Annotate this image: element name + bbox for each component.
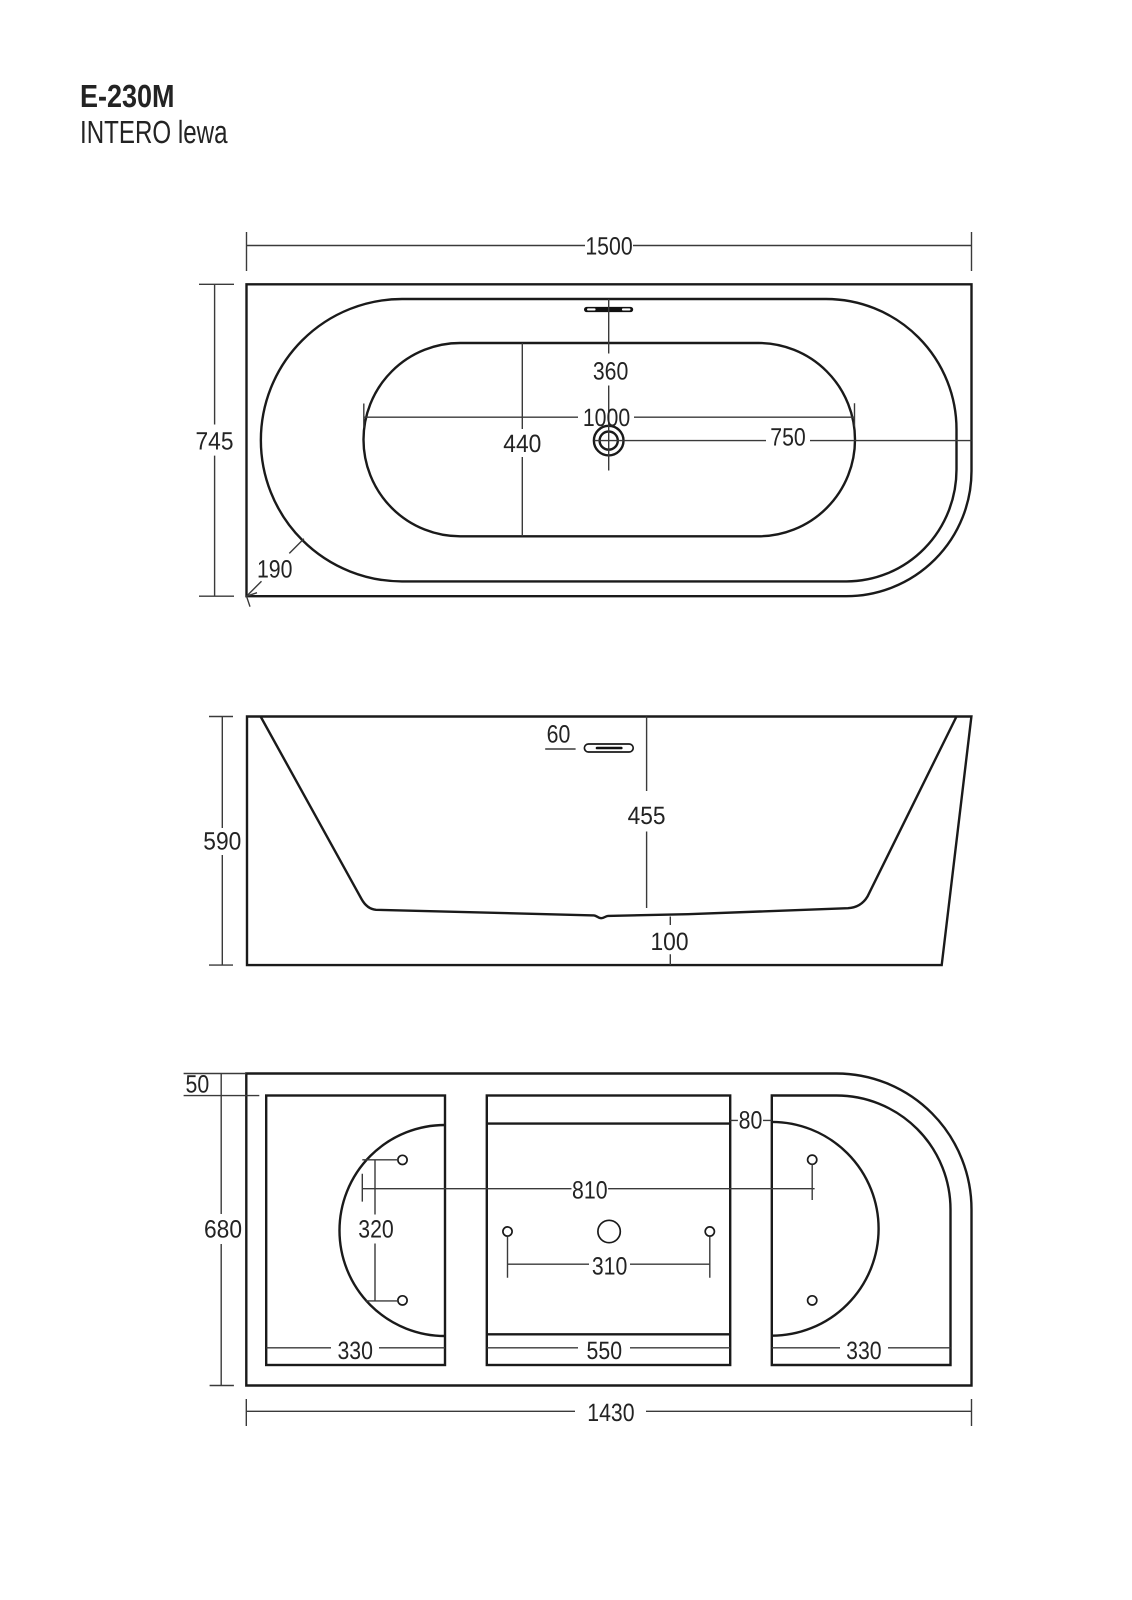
svg-text:810: 810 (572, 1177, 608, 1205)
svg-text:320: 320 (358, 1216, 394, 1244)
svg-text:E-230M: E-230M (80, 78, 175, 114)
svg-text:1500: 1500 (585, 233, 632, 261)
svg-text:310: 310 (592, 1253, 628, 1281)
svg-text:INTERO lewa: INTERO lewa (80, 114, 228, 150)
svg-text:190: 190 (257, 556, 293, 584)
svg-text:80: 80 (739, 1106, 763, 1134)
svg-text:1000: 1000 (583, 404, 630, 432)
svg-text:50: 50 (186, 1070, 210, 1098)
svg-text:330: 330 (337, 1337, 373, 1365)
svg-text:60: 60 (547, 720, 571, 748)
svg-text:455: 455 (628, 802, 666, 830)
svg-text:360: 360 (593, 357, 629, 385)
svg-text:440: 440 (503, 430, 541, 458)
svg-text:550: 550 (587, 1337, 623, 1365)
svg-text:100: 100 (651, 928, 689, 956)
svg-text:680: 680 (204, 1216, 242, 1244)
svg-text:590: 590 (203, 828, 241, 856)
svg-text:745: 745 (196, 428, 234, 456)
svg-text:330: 330 (846, 1337, 882, 1365)
svg-text:750: 750 (770, 424, 806, 452)
svg-text:1430: 1430 (587, 1399, 634, 1427)
